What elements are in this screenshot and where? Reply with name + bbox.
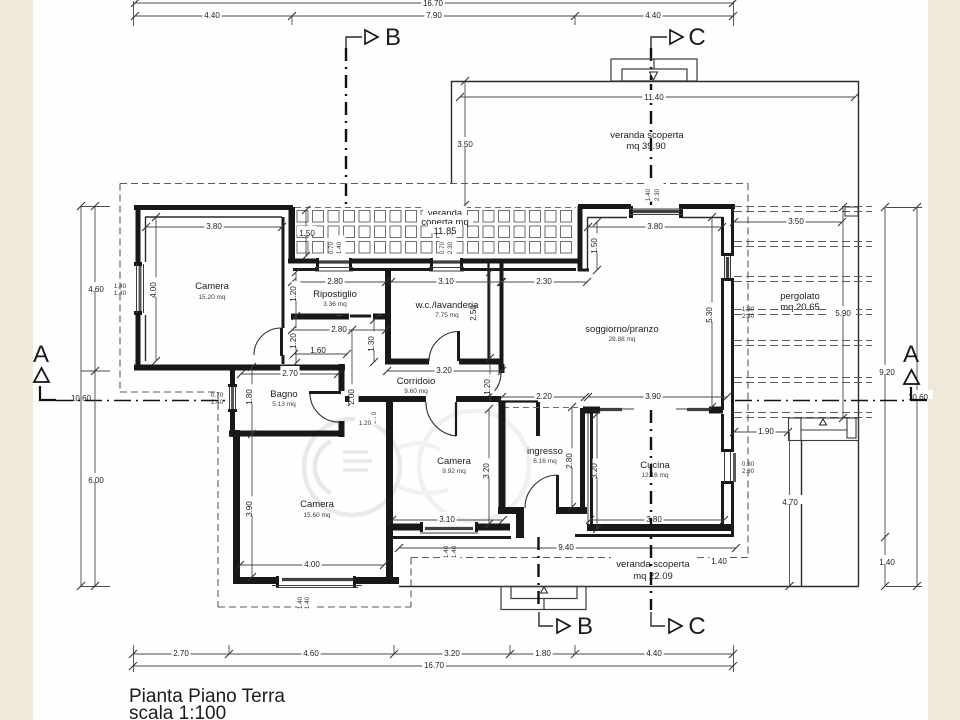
svg-text:3.20: 3.20 [444,649,460,658]
svg-text:1.50: 1.50 [299,229,315,238]
svg-text:A: A [33,341,49,368]
svg-text:3.50: 3.50 [457,140,473,149]
svg-text:1.30: 1.30 [367,336,376,352]
svg-text:B: B [577,613,593,640]
svg-text:C: C [688,24,705,51]
svg-text:1.40: 1.40 [451,545,458,558]
svg-text:1.20: 1.20 [289,286,298,302]
svg-text:7.90: 7.90 [426,11,442,20]
svg-text:4.40: 4.40 [204,11,220,20]
svg-text:A: A [903,341,919,368]
svg-text:1.60: 1.60 [310,346,326,355]
svg-text:6.16 mq: 6.16 mq [533,458,557,465]
svg-text:1.80: 1.80 [245,389,254,405]
svg-text:scala 1:100: scala 1:100 [129,703,226,720]
svg-text:12.16 mq: 12.16 mq [641,472,668,479]
svg-text:3.80: 3.80 [647,222,663,231]
svg-text:mq 39.90: mq 39.90 [626,141,666,152]
svg-text:5.13 mq: 5.13 mq [272,401,296,408]
svg-text:2.30: 2.30 [536,277,552,286]
svg-text:16.70: 16.70 [424,661,445,670]
svg-text:7.75 mq: 7.75 mq [435,312,459,319]
svg-text:1.40: 1.40 [304,596,311,609]
svg-text:Camera: Camera [195,281,230,292]
svg-text:3.90: 3.90 [245,501,254,517]
svg-text:C: C [688,613,705,640]
svg-text:1.80: 1.80 [742,306,755,313]
svg-text:0.70: 0.70 [439,241,446,254]
svg-text:2.00: 2.00 [347,389,356,405]
svg-text:2.80: 2.80 [565,453,574,469]
svg-text:3.20: 3.20 [436,366,452,375]
svg-text:9.60 mq: 9.60 mq [404,388,428,395]
svg-text:15.20 mq: 15.20 mq [198,294,225,301]
svg-text:11.85: 11.85 [433,226,456,237]
svg-text:w.c./lavanderia: w.c./lavanderia [415,300,480,311]
svg-text:0.70: 0.70 [211,392,224,399]
svg-text:1.20: 1.20 [359,420,372,427]
svg-text:9.40: 9.40 [558,543,574,552]
svg-text:5.90: 5.90 [835,309,851,318]
svg-text:4.00: 4.00 [149,282,158,298]
svg-text:Cucina: Cucina [640,460,670,471]
svg-text:15.60 mq: 15.60 mq [303,512,330,519]
svg-text:0.70: 0.70 [328,241,335,254]
svg-text:9.92 mq: 9.92 mq [442,468,466,475]
svg-text:1.40: 1.40 [336,241,343,254]
svg-text:Bagno: Bagno [270,389,297,400]
svg-text:1.90: 1.90 [758,427,774,436]
svg-text:3.10: 3.10 [438,277,454,286]
svg-text:Ripostiglio: Ripostiglio [313,289,357,300]
svg-text:3.50: 3.50 [788,217,804,226]
svg-text:Corridoio: Corridoio [397,376,436,387]
svg-text:1.40: 1.40 [879,558,895,567]
svg-text:1.40: 1.40 [114,283,127,290]
svg-text:4.40: 4.40 [646,649,662,658]
svg-text:2.30: 2.30 [447,241,454,254]
svg-text:1.80: 1.80 [535,649,551,658]
svg-text:1.40: 1.40 [443,545,450,558]
svg-text:2.30: 2.30 [742,468,755,475]
svg-text:4.60: 4.60 [88,285,104,294]
svg-text:2.70: 2.70 [282,369,298,378]
svg-text:2.20: 2.20 [536,392,552,401]
svg-text:28.88 mq: 28.88 mq [608,336,635,343]
svg-text:2.30: 2.30 [742,313,755,320]
svg-text:4.40: 4.40 [645,11,661,20]
svg-text:3.36 mq: 3.36 mq [323,301,347,308]
svg-text:2.80: 2.80 [327,277,343,286]
svg-text:6.00: 6.00 [88,476,104,485]
svg-text:4.60: 4.60 [303,649,319,658]
svg-text:2.30: 2.30 [654,188,661,201]
svg-text:pergolato: pergolato [780,291,820,302]
svg-text:1.20: 1.20 [483,379,492,395]
svg-text:Camera: Camera [437,456,472,467]
svg-text:0.80: 0.80 [742,461,755,468]
svg-text:9.20: 9.20 [879,368,895,377]
svg-text:2.70: 2.70 [173,649,189,658]
svg-text:16.70: 16.70 [423,0,444,8]
svg-text:3.20: 3.20 [482,463,491,479]
svg-text:B: B [385,24,401,51]
svg-text:veranda scoperta: veranda scoperta [616,559,690,570]
svg-text:3.10: 3.10 [439,515,455,524]
svg-text:4.70: 4.70 [782,498,798,507]
svg-text:mq 20.65: mq 20.65 [780,302,820,313]
svg-text:3.90: 3.90 [645,392,661,401]
svg-text:soggiorno/pranzo: soggiorno/pranzo [585,324,658,335]
svg-text:2.80: 2.80 [331,325,347,334]
svg-text:1.40: 1.40 [114,290,127,297]
svg-text:1.40: 1.40 [645,188,652,201]
svg-text:1.40: 1.40 [711,557,727,566]
svg-text:1.20: 1.20 [289,333,298,349]
svg-text:veranda scoperta: veranda scoperta [610,130,684,141]
svg-text:11.40: 11.40 [644,93,664,102]
svg-text:3.20: 3.20 [590,463,599,479]
svg-text:mq 22.09: mq 22.09 [633,571,673,582]
svg-text:3.80: 3.80 [206,222,222,231]
svg-text:3.80: 3.80 [646,515,662,524]
svg-text:1.40: 1.40 [297,596,304,609]
svg-text:Camera: Camera [300,499,335,510]
svg-text:1.50: 1.50 [590,238,599,254]
svg-text:ingresso: ingresso [527,446,563,457]
svg-text:4.00: 4.00 [304,560,320,569]
svg-text:5.30: 5.30 [705,307,714,323]
